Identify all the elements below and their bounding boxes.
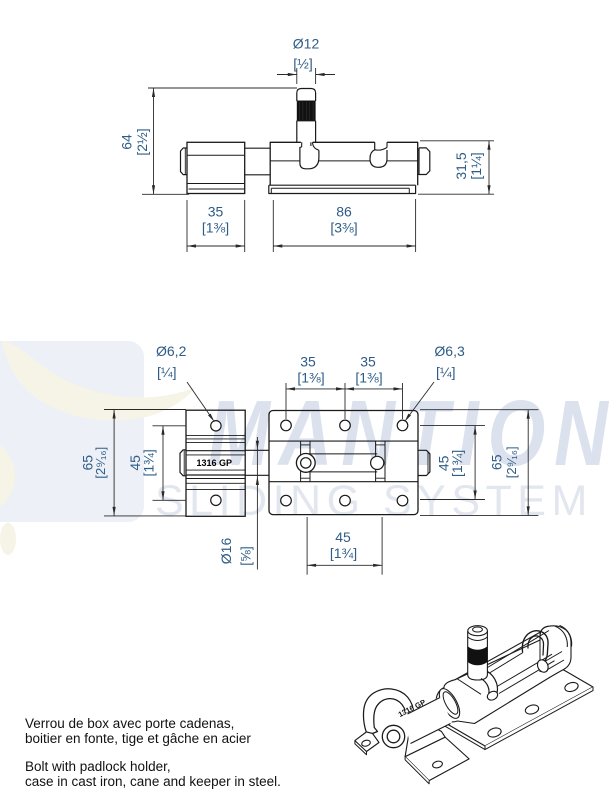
svg-text:[2⁹⁄₁₆]: [2⁹⁄₁₆] xyxy=(93,447,108,479)
svg-text:[½]: [½] xyxy=(293,56,312,72)
svg-text:[1¼]: [1¼] xyxy=(468,152,484,179)
svg-text:45: 45 xyxy=(335,529,351,545)
svg-text:[3⅜]: [3⅜] xyxy=(330,220,357,236)
svg-text:1316 GP: 1316 GP xyxy=(197,458,233,468)
svg-text:[1¾]: [1¾] xyxy=(449,450,465,477)
svg-text:64: 64 xyxy=(119,134,135,150)
svg-text:Verrou de box avec porte caden: Verrou de box avec porte cadenas, xyxy=(25,716,234,731)
svg-text:86: 86 xyxy=(336,204,352,220)
svg-text:Bolt with padlock holder,: Bolt with padlock holder, xyxy=(25,759,171,774)
svg-text:Ø12: Ø12 xyxy=(293,36,320,52)
svg-text:[¼]: [¼] xyxy=(436,364,455,380)
svg-text:35: 35 xyxy=(360,354,376,370)
svg-text:[2½]: [2½] xyxy=(134,128,150,155)
svg-text:[¼]: [¼] xyxy=(157,364,176,380)
svg-text:[1¾]: [1¾] xyxy=(330,545,357,561)
svg-text:[2⁹⁄₁₆]: [2⁹⁄₁₆] xyxy=(504,446,519,478)
svg-text:35: 35 xyxy=(208,204,224,220)
svg-text:Ø6,3: Ø6,3 xyxy=(434,343,465,359)
svg-text:Ø6,2: Ø6,2 xyxy=(156,343,187,359)
svg-text:35: 35 xyxy=(300,354,316,370)
svg-text:[1⅜]: [1⅜] xyxy=(355,370,382,386)
svg-text:Ø16: Ø16 xyxy=(218,538,234,565)
svg-text:31,5: 31,5 xyxy=(453,152,469,179)
svg-text:[1¾]: [1¾] xyxy=(141,449,157,476)
svg-text:case in cast iron, cane and ke: case in cast iron, cane and keeper in st… xyxy=(25,774,281,789)
svg-text:65: 65 xyxy=(489,454,505,470)
svg-text:[1⅜]: [1⅜] xyxy=(297,370,324,386)
svg-text:[1⅜]: [1⅜] xyxy=(202,220,229,236)
svg-text:[⅝]: [⅝] xyxy=(238,546,254,565)
svg-text:boitier en fonte, tige et gâch: boitier en fonte, tige et gâche en acier xyxy=(25,731,251,746)
